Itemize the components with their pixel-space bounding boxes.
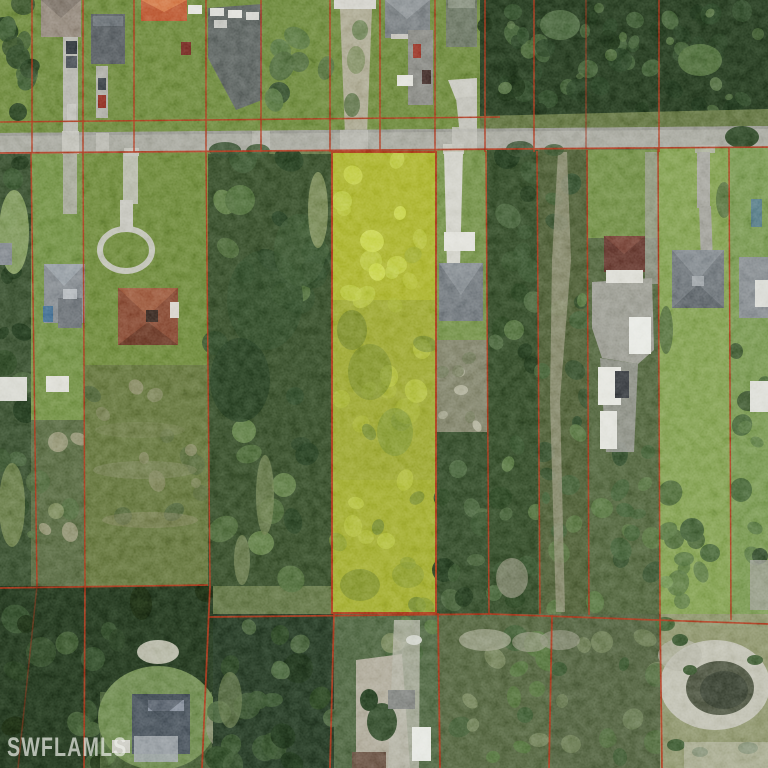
svg-text:SWFLAMLS: SWFLAMLS	[7, 733, 127, 763]
